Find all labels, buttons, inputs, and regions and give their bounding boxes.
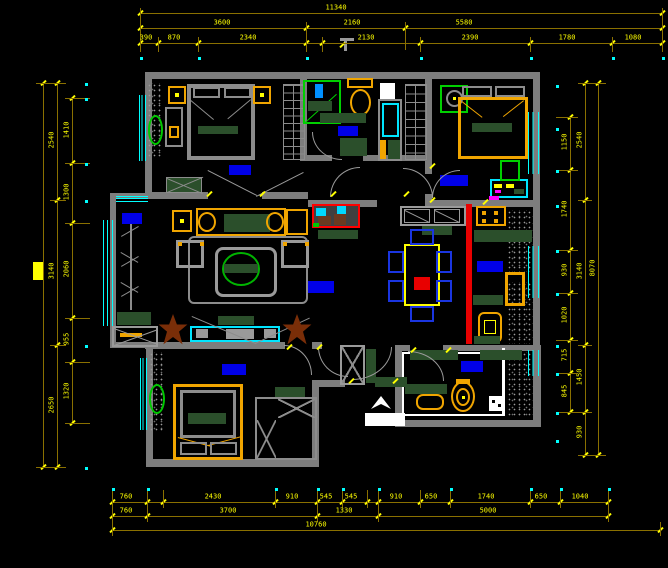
dim-text: 1410 [64,122,71,139]
dim-text: 11340 [325,5,346,12]
dim-ext [405,22,406,50]
dim-ext [591,455,606,456]
dim-text: 390 [140,35,153,42]
dim-text: 3600 [214,20,231,27]
dim-line [140,43,662,44]
defpoint [662,57,665,60]
dim-text: 1740 [478,494,495,501]
dim-line [570,117,571,412]
dim-ext [378,508,379,522]
dim-ext [147,508,148,522]
dim-text: 1150 [562,134,569,151]
dim-text: 1330 [336,508,353,515]
dim-text: 870 [168,35,181,42]
dim-ext [112,508,113,522]
dim-ext [578,345,592,346]
dim-ext [578,83,592,84]
dim-ext [556,117,578,118]
defpoint [556,170,559,173]
defpoint [450,488,453,491]
dim-text: 1740 [562,201,569,218]
dim-ext [306,37,307,52]
dim-text: 545 [320,494,333,501]
defpoint [85,200,88,203]
dim-ext [662,37,663,52]
dim-ext [556,250,578,251]
dim-text: 2160 [344,20,361,27]
dim-text: 3700 [220,508,237,515]
dim-ext [556,293,578,294]
dim-ext [112,522,113,536]
dim-ext [275,490,276,508]
dim-ext [378,490,379,508]
defpoint [140,57,143,60]
dim-ext [530,37,531,52]
dim-text: 650 [425,494,438,501]
dim-ext [65,362,90,363]
dim-ext [556,340,578,341]
defpoint [85,98,88,101]
defpoint [556,250,559,253]
dim-text: 10760 [305,522,326,529]
dim-text: 650 [535,494,548,501]
dim-ext [556,373,578,374]
dim-text: 2650 [49,397,56,414]
dim-text: 5000 [480,508,497,515]
defpoint [556,128,559,131]
dim-text: 1780 [559,35,576,42]
dim-line [57,83,58,467]
dim-ext [608,490,609,508]
defpoint [306,57,309,60]
dim-text: 715 [562,349,569,362]
defpoint [608,488,611,491]
dim-ext [163,490,164,508]
dim-ext [50,467,66,468]
dim-text: 2060 [64,261,71,278]
dim-line [112,530,660,531]
dim-line [585,83,586,455]
dim-line [598,83,599,455]
dim-ext [65,223,90,224]
dim-ext [147,490,148,508]
dimensions-layer: 1134036002160558039087023402130239017801… [0,0,668,568]
cad-viewport[interactable]: 1134036002160558039087023402130239017801… [0,0,668,568]
dim-ext [591,83,606,84]
dim-text: 910 [390,494,403,501]
dim-ext [612,37,613,52]
dim-text: 910 [286,494,299,501]
dim-line [112,502,608,503]
defpoint [556,345,559,348]
dim-ext [578,412,592,413]
defpoint [560,488,563,491]
dim-line [43,83,44,467]
defpoint [556,440,559,443]
dim-ext [342,490,343,508]
defpoint [85,163,88,166]
dim-ext [660,522,661,536]
defpoint [85,345,88,348]
dim-ext [420,37,421,52]
dim-ext [560,490,561,508]
dim-ext [158,37,159,52]
dim-ext [608,508,609,522]
defpoint [198,57,201,60]
dim-line [72,98,73,423]
dim-text: 930 [577,426,584,439]
dim-text: 1320 [64,383,71,400]
dim-ext [450,490,451,508]
dim-text: 2540 [577,132,584,149]
dim-text: 8070 [590,260,597,277]
dim-ext [420,490,421,508]
defpoint [556,85,559,88]
defpoint [530,57,533,60]
defpoint [530,488,533,491]
defpoint [85,83,88,86]
dim-text: 760 [120,508,133,515]
defpoint [112,488,115,491]
dim-ext [198,37,199,52]
dim-text: 1080 [625,35,642,42]
dim-text: 760 [120,494,133,501]
dim-text: 3140 [577,263,584,280]
dim-text: 845 [562,385,569,398]
dim-ext [556,412,578,413]
dim-text: 1450 [577,369,584,386]
dim-text: 1040 [572,494,589,501]
dim-text: 8340 [35,264,42,281]
dim-ext [578,200,592,201]
defpoint [556,412,559,415]
dim-ext [367,490,368,508]
dim-text: 930 [562,264,569,277]
dim-line [140,13,662,14]
defpoint [147,488,150,491]
dim-ext [112,490,113,508]
dim-line [140,28,662,29]
dim-ext [65,318,90,319]
dim-text: 3140 [49,263,56,280]
dim-ext [65,423,90,424]
defpoint [556,293,559,296]
defpoint [342,488,345,491]
defpoint [612,57,615,60]
dim-text: 2340 [240,35,257,42]
defpoint [378,488,381,491]
dim-text: 1020 [562,307,569,324]
dim-ext [556,170,578,171]
dim-text: 2540 [49,132,56,149]
dim-text: 5580 [456,20,473,27]
dim-ext [50,83,66,84]
dim-ext [322,37,323,52]
dim-ext [530,490,531,508]
dim-text: 1300 [64,184,71,201]
dim-text: 545 [345,494,358,501]
defpoint [317,488,320,491]
dim-text: 2130 [358,35,375,42]
dim-ext [317,490,318,508]
defpoint [275,488,278,491]
dim-line [112,516,608,517]
dim-text: 2430 [205,494,222,501]
dim-ext [578,455,592,456]
defpoint [556,205,559,208]
dim-text: 955 [64,333,71,346]
defpoint [420,57,423,60]
dim-text: 2390 [462,35,479,42]
defpoint [556,373,559,376]
defpoint [85,467,88,470]
